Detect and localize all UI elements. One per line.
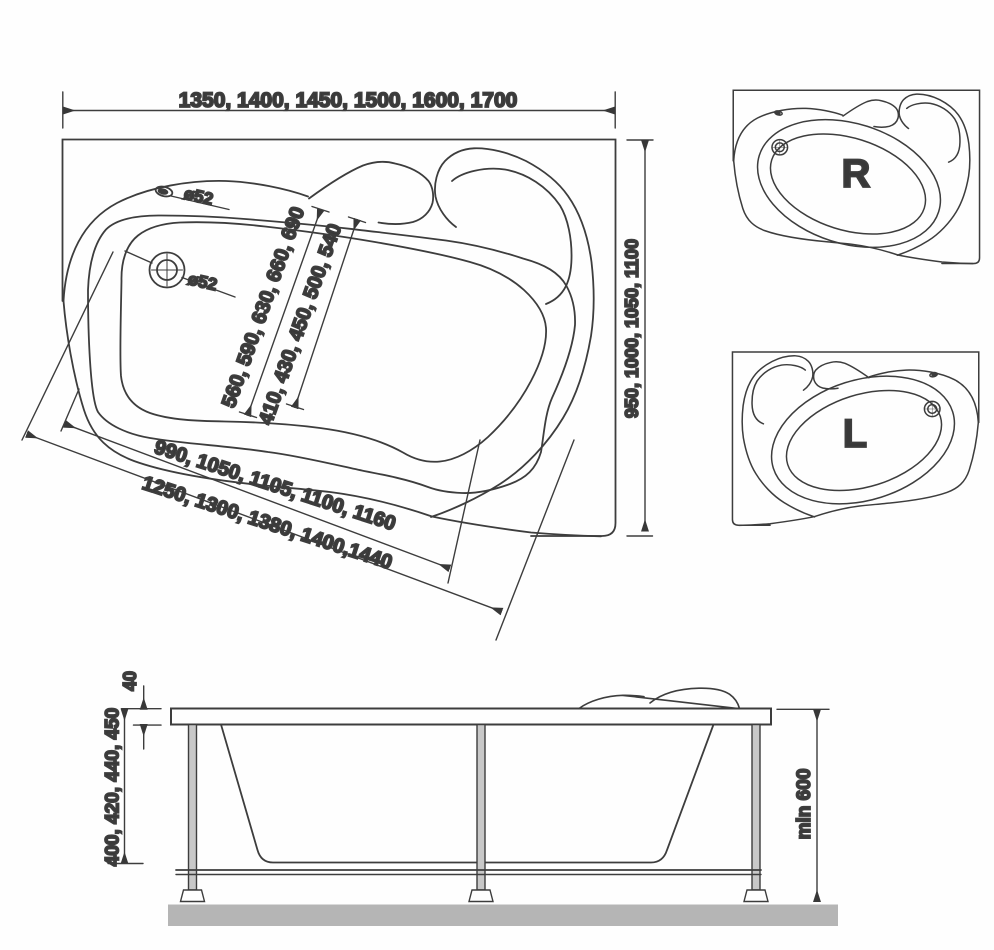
svg-text:ø52: ø52 <box>186 269 219 294</box>
svg-text:950, 1000, 1050, 1100: 950, 1000, 1050, 1100 <box>622 239 642 418</box>
svg-text:L: L <box>843 412 867 456</box>
svg-text:1350, 1400, 1450, 1500, 1600,: 1350, 1400, 1450, 1500, 1600, 1700 <box>179 89 518 112</box>
svg-text:ø52: ø52 <box>182 184 215 209</box>
svg-text:R: R <box>842 152 871 196</box>
svg-text:min 600: min 600 <box>794 769 815 840</box>
svg-text:40: 40 <box>120 671 140 691</box>
svg-text:400, 420, 440, 450: 400, 420, 440, 450 <box>103 708 124 866</box>
